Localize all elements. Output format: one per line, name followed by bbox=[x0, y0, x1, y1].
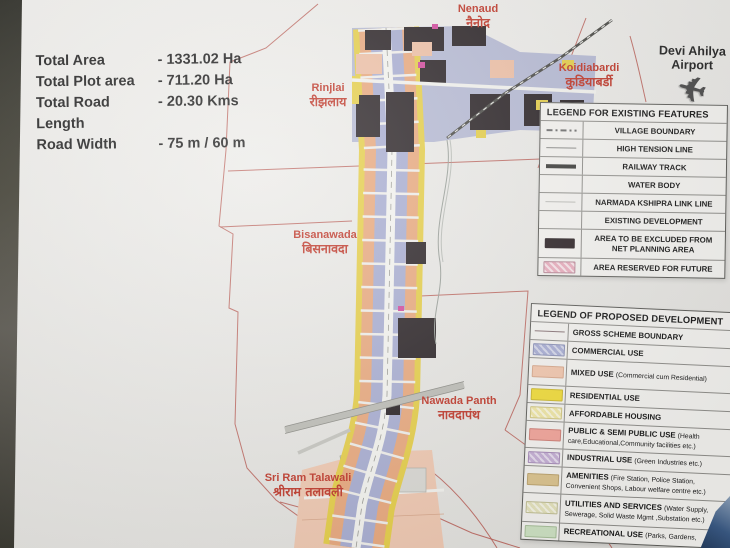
scheme-stats: Total Area - 1331.02 Ha Total Plot area … bbox=[35, 49, 276, 157]
legend-label: COMMERCIAL USE bbox=[572, 346, 644, 358]
legend-label: INDUSTRIAL USE bbox=[567, 453, 633, 465]
place-label-sri-ram-talawali: Sri Ram Talawali श्रीराम तलावली bbox=[265, 472, 352, 499]
legend-row: EXISTING DEVELOPMENT bbox=[539, 210, 725, 231]
excluded-area-swatch bbox=[545, 238, 575, 248]
place-name-en: Rinjlai bbox=[310, 82, 347, 95]
place-label-rinjlai: Rinjlai रीझलाय bbox=[310, 82, 347, 109]
recreational-use-swatch bbox=[524, 524, 557, 537]
legend-label: AMENITIES bbox=[566, 470, 609, 481]
legend-row: NARMADA KSHIPRA LINK LINE bbox=[539, 192, 725, 213]
legend-label: GROSS SCHEME BOUNDARY bbox=[573, 328, 684, 342]
stat-label: Total Plot area bbox=[36, 71, 158, 93]
place-name-en: Nawada Panth bbox=[421, 395, 496, 408]
legend-proposed-development: LEGEND OF PROPOSED DEVELOPMENT GROSS SCH… bbox=[520, 303, 730, 548]
legend-label: RESIDENTIAL USE bbox=[570, 390, 640, 402]
gross-scheme-boundary-swatch bbox=[534, 330, 564, 333]
legend-row: RAILWAY TRACK bbox=[540, 156, 726, 177]
airport-name-line1: Devi Ahilya bbox=[646, 43, 730, 59]
legend-label: AREA TO BE EXCLUDED FROM NET PLANNING AR… bbox=[582, 233, 725, 257]
legend-label: RECREATIONAL USE bbox=[563, 527, 643, 540]
stat-value: - 20.30 Kms bbox=[158, 91, 276, 134]
place-name-en: Sri Ram Talawali bbox=[265, 472, 352, 485]
airport-label: Devi Ahilya Airport ✈ bbox=[645, 43, 730, 105]
legend-label: EXISTING DEVELOPMENT bbox=[582, 214, 725, 228]
legend-existing-features: LEGEND FOR EXISTING FEATURES VILLAGE BOU… bbox=[537, 102, 728, 279]
stat-row: Total Road Length - 20.30 Kms bbox=[36, 91, 276, 136]
railway-track-swatch bbox=[546, 164, 576, 168]
link-line bbox=[434, 140, 451, 344]
place-label-bisanawada: Bisanawada बिसनावदा bbox=[293, 229, 357, 256]
place-name-hi: श्रीराम तलावली bbox=[265, 485, 352, 499]
legend-sublabel: (Commercial cum Residential) bbox=[616, 372, 707, 383]
amenities-swatch bbox=[526, 473, 559, 486]
legend-label: RAILWAY TRACK bbox=[583, 160, 726, 174]
stat-row: Total Plot area - 711.20 Ha bbox=[36, 70, 276, 94]
place-name-hi: नावदापंथ bbox=[421, 408, 496, 422]
high-tension-line-swatch bbox=[546, 147, 576, 149]
legend-label: AFFORDABLE HOUSING bbox=[569, 408, 662, 421]
legend-label: VILLAGE BOUNDARY bbox=[583, 124, 726, 138]
planning-board-photo: Total Area - 1331.02 Ha Total Plot area … bbox=[0, 0, 730, 548]
place-label-nenaud: Nenaud नैनोद bbox=[458, 3, 498, 30]
reserved-future-swatch bbox=[543, 261, 575, 274]
mixed-use-swatch bbox=[531, 365, 564, 378]
place-name-en: Koidiabardi bbox=[559, 62, 620, 75]
affordable-housing-swatch bbox=[529, 406, 562, 419]
stat-value: - 1331.02 Ha bbox=[157, 49, 275, 71]
stat-label: Road Width bbox=[36, 134, 158, 156]
village-boundary-swatch bbox=[547, 129, 577, 131]
legend-row: WATER BODY bbox=[540, 174, 726, 195]
legend-row: AREA TO BE EXCLUDED FROM NET PLANNING AR… bbox=[539, 228, 725, 260]
commercial-use-swatch bbox=[532, 343, 565, 356]
legend-row: AREA RESERVED FOR FUTURE bbox=[538, 257, 724, 278]
legend-label: PUBLIC & SEMI PUBLIC USE bbox=[568, 425, 676, 439]
stat-value: - 711.20 Ha bbox=[158, 70, 276, 92]
residential-use-swatch bbox=[530, 388, 563, 401]
legend-label: AREA RESERVED FOR FUTURE bbox=[581, 261, 724, 275]
legend-label: WATER BODY bbox=[583, 178, 726, 192]
place-label-nawada-panth: Nawada Panth नावदापंथ bbox=[421, 395, 496, 422]
existing-development-swatch bbox=[545, 219, 575, 220]
legend-label: HIGH TENSION LINE bbox=[583, 142, 726, 156]
legend-label: MIXED USE bbox=[571, 368, 614, 379]
stat-row: Road Width - 75 m / 60 m bbox=[36, 133, 276, 157]
legend-label: UTILITIES AND SERVICES bbox=[565, 498, 662, 511]
place-name-en: Nenaud bbox=[458, 3, 498, 16]
legend-sublabel: (Parks, Gardens, bbox=[645, 533, 697, 542]
stat-row: Total Area - 1331.02 Ha bbox=[35, 49, 275, 73]
public-semi-public-swatch bbox=[528, 428, 561, 441]
stat-value: - 75 m / 60 m bbox=[158, 133, 276, 155]
place-name-hi: कुडियाबर्डी bbox=[559, 75, 620, 89]
legend-sublabel: (Green Industries etc.) bbox=[634, 458, 702, 468]
place-name-en: Bisanawada bbox=[293, 229, 357, 242]
stat-label: Total Area bbox=[35, 50, 157, 72]
place-name-hi: रीझलाय bbox=[310, 95, 347, 109]
place-label-koidiabardi: Koidiabardi कुडियाबर्डी bbox=[559, 62, 620, 89]
legend-row: VILLAGE BOUNDARY bbox=[540, 120, 726, 141]
utilities-services-swatch bbox=[525, 501, 558, 514]
legend-row: HIGH TENSION LINE bbox=[540, 138, 726, 159]
narmada-kshipra-link-swatch bbox=[545, 201, 575, 203]
legend-label: NARMADA KSHIPRA LINK LINE bbox=[582, 196, 725, 210]
place-name-hi: नैनोद bbox=[458, 16, 498, 30]
industrial-use-swatch bbox=[527, 451, 560, 464]
stat-label: Total Road Length bbox=[36, 92, 158, 135]
water-body-swatch bbox=[546, 183, 576, 184]
place-name-hi: बिसनावदा bbox=[293, 242, 357, 256]
